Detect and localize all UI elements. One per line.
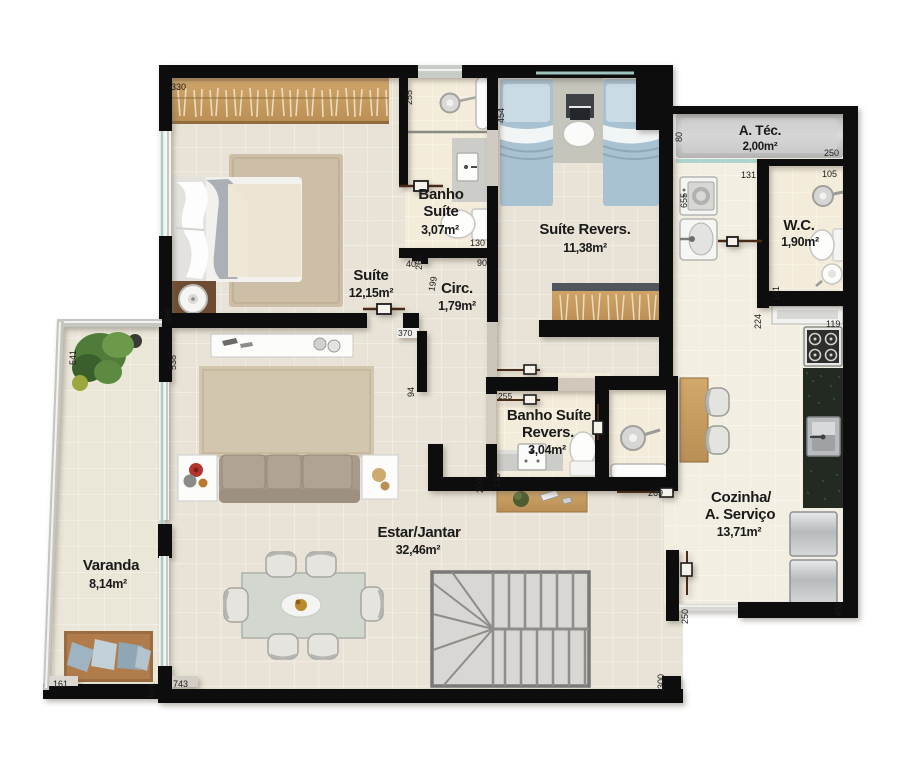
- svg-text:743: 743: [173, 679, 188, 689]
- svg-text:1,90m²: 1,90m²: [781, 235, 819, 249]
- svg-text:119: 119: [826, 319, 840, 329]
- svg-text:255: 255: [498, 391, 512, 401]
- svg-text:105: 105: [822, 169, 837, 179]
- svg-text:Varanda: Varanda: [83, 557, 140, 574]
- svg-text:181: 181: [771, 286, 781, 301]
- svg-text:8,14m²: 8,14m²: [89, 577, 127, 591]
- svg-text:Suíte: Suíte: [423, 203, 458, 220]
- svg-text:209: 209: [475, 478, 485, 493]
- svg-text:Suíte Revers.: Suíte Revers.: [539, 221, 630, 238]
- svg-text:454: 454: [496, 108, 506, 123]
- svg-text:Banho Suíte: Banho Suíte: [507, 407, 591, 424]
- svg-text:370: 370: [398, 328, 412, 338]
- svg-text:224: 224: [753, 314, 763, 329]
- svg-text:269: 269: [648, 488, 663, 498]
- svg-text:80: 80: [674, 132, 684, 142]
- svg-text:330: 330: [171, 82, 186, 92]
- svg-text:Suíte: Suíte: [353, 267, 388, 284]
- svg-text:Circ.: Circ.: [441, 280, 473, 297]
- svg-text:3,04m²: 3,04m²: [528, 443, 566, 457]
- svg-text:12,15m²: 12,15m²: [349, 286, 394, 300]
- svg-text:2,00m²: 2,00m²: [743, 141, 778, 153]
- svg-text:130: 130: [492, 473, 502, 488]
- svg-text:Revers.: Revers.: [522, 424, 574, 441]
- svg-text:130: 130: [470, 238, 485, 248]
- svg-text:A. Téc.: A. Téc.: [739, 123, 781, 138]
- svg-text:1,79m²: 1,79m²: [438, 299, 476, 313]
- svg-text:541: 541: [147, 683, 157, 697]
- svg-text:541: 541: [68, 350, 78, 365]
- svg-text:Cozinha/: Cozinha/: [711, 489, 772, 506]
- svg-text:W.C.: W.C.: [783, 217, 814, 234]
- svg-text:250: 250: [680, 609, 690, 624]
- svg-text:A. Serviço: A. Serviço: [705, 506, 776, 523]
- svg-text:655: 655: [679, 193, 689, 208]
- svg-text:40: 40: [406, 259, 416, 269]
- svg-text:90: 90: [477, 258, 487, 268]
- svg-text:161: 161: [53, 679, 68, 689]
- svg-text:94: 94: [406, 387, 416, 397]
- svg-text:131: 131: [741, 170, 756, 180]
- svg-text:Banho: Banho: [418, 186, 463, 203]
- svg-text:13,71m²: 13,71m²: [717, 525, 762, 539]
- svg-text:360: 360: [163, 308, 173, 323]
- svg-text:11,38m²: 11,38m²: [563, 241, 607, 255]
- svg-text:300: 300: [656, 674, 666, 689]
- svg-text:538: 538: [168, 355, 178, 370]
- svg-text:3,07m²: 3,07m²: [421, 223, 459, 237]
- svg-text:32,46m²: 32,46m²: [396, 543, 441, 557]
- svg-text:431: 431: [833, 602, 843, 616]
- svg-text:Estar/Jantar: Estar/Jantar: [377, 524, 461, 541]
- svg-text:255: 255: [404, 90, 414, 105]
- svg-text:250: 250: [824, 148, 839, 158]
